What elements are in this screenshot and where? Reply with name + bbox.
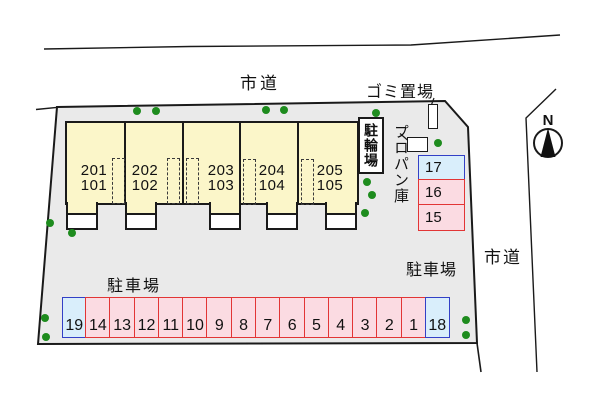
- site-plan: 市道 市道 ゴミ置場 駐車場 駐車場 N 2011012021022031032…: [0, 0, 600, 400]
- tree-dot: [462, 316, 470, 324]
- tree-dot: [262, 106, 270, 114]
- space-number: 13: [113, 317, 131, 335]
- unit-number-upper: 204: [248, 163, 296, 178]
- garbage-box: [428, 104, 438, 129]
- space-number: 19: [65, 317, 83, 335]
- tree-dot: [68, 229, 76, 237]
- unit-label: 204104: [248, 163, 296, 193]
- entrance-step: [66, 202, 98, 215]
- parking-space-17: 17: [418, 155, 465, 181]
- parking-space-7: 7: [255, 297, 281, 338]
- tree-dot: [152, 107, 160, 115]
- entrance-porch: [66, 215, 98, 230]
- entrance-porch: [125, 215, 157, 230]
- parking-space-6: 6: [279, 297, 305, 338]
- parking-space-4: 4: [328, 297, 354, 338]
- tree-dot: [361, 209, 369, 217]
- garbage-area-label: ゴミ置場: [366, 78, 434, 102]
- parking-space-1: 1: [401, 297, 427, 338]
- unit-number-lower: 104: [248, 178, 296, 193]
- tree-dot: [280, 106, 288, 114]
- unit-divider: [182, 123, 184, 203]
- unit-number-upper: 202: [121, 163, 169, 178]
- space-number: 4: [336, 317, 345, 335]
- unit-number-upper: 205: [306, 163, 354, 178]
- unit-number-upper: 203: [197, 163, 245, 178]
- parking-space-8: 8: [231, 297, 257, 338]
- entrance-porch: [209, 215, 241, 230]
- unit-label: 201101: [70, 163, 118, 193]
- parking-space-12: 12: [134, 297, 160, 338]
- parking-space-10: 10: [182, 297, 208, 338]
- road-right-inner-edge-extension: [477, 343, 481, 372]
- parking-area-label-left: 駐車場: [107, 272, 161, 296]
- space-number: 9: [215, 317, 224, 335]
- bicycle-parking-box: 駐輪場: [358, 117, 384, 174]
- unit-label: 202102: [121, 163, 169, 193]
- parking-space-14: 14: [85, 297, 111, 338]
- unit-divider: [297, 123, 299, 203]
- space-number: 18: [428, 317, 446, 335]
- tree-dot: [46, 219, 54, 227]
- unit-number-upper: 201: [70, 163, 118, 178]
- parking-space-15: 15: [418, 204, 465, 231]
- entrance-porch: [266, 215, 298, 230]
- tree-dot: [41, 314, 49, 322]
- road-top-inner-edge-extension: [36, 107, 58, 109]
- parking-space-3: 3: [352, 297, 378, 338]
- propane-label: プロパン庫: [390, 124, 411, 216]
- tree-dot: [372, 109, 380, 117]
- road-top-outer-edge: [44, 35, 560, 49]
- unit-label: 203103: [197, 163, 245, 193]
- space-number: 7: [263, 317, 272, 335]
- entrance-porch: [325, 215, 357, 230]
- tree-dot: [462, 331, 470, 339]
- unit-label: 205105: [306, 163, 354, 193]
- parking-space-2: 2: [376, 297, 402, 338]
- unit-number-lower: 103: [197, 178, 245, 193]
- space-number: 1: [409, 317, 418, 335]
- parking-space-11: 11: [158, 297, 184, 338]
- space-number: 14: [89, 317, 107, 335]
- entrance-step: [266, 202, 298, 215]
- road-right-label: 市道: [484, 243, 522, 268]
- tree-dot: [42, 333, 50, 341]
- space-number: 11: [162, 317, 179, 335]
- parking-space-9: 9: [206, 297, 232, 338]
- space-number: 10: [186, 317, 204, 335]
- tree-dot: [368, 191, 376, 199]
- space-number: 12: [138, 317, 156, 335]
- space-number: 6: [288, 317, 297, 335]
- parking-space-13: 13: [109, 297, 135, 338]
- space-number: 3: [361, 317, 370, 335]
- parking-space-18: 18: [425, 297, 450, 338]
- space-number: 17: [425, 159, 442, 176]
- parking-area-label-right: 駐車場: [406, 256, 457, 280]
- unit-number-lower: 102: [121, 178, 169, 193]
- space-number: 8: [239, 317, 248, 335]
- road-top-label: 市道: [240, 69, 280, 94]
- entrance-step: [125, 202, 157, 215]
- space-number: 5: [312, 317, 321, 335]
- compass-needle: [541, 128, 556, 157]
- entrance-step: [209, 202, 241, 215]
- unit-number-lower: 105: [306, 178, 354, 193]
- tree-dot: [133, 107, 141, 115]
- tree-dot: [434, 139, 442, 147]
- bicycle-parking-label: 駐輪場: [361, 123, 381, 168]
- tree-dot: [363, 178, 371, 186]
- compass-north-label: N: [538, 112, 558, 129]
- space-number: 15: [425, 209, 442, 226]
- parking-space-19: 19: [62, 297, 87, 338]
- parking-space-5: 5: [304, 297, 330, 338]
- unit-number-lower: 101: [70, 178, 118, 193]
- space-number: 2: [385, 317, 394, 335]
- space-number: 16: [425, 184, 442, 201]
- parking-space-16: 16: [418, 179, 465, 206]
- entrance-step: [325, 202, 357, 215]
